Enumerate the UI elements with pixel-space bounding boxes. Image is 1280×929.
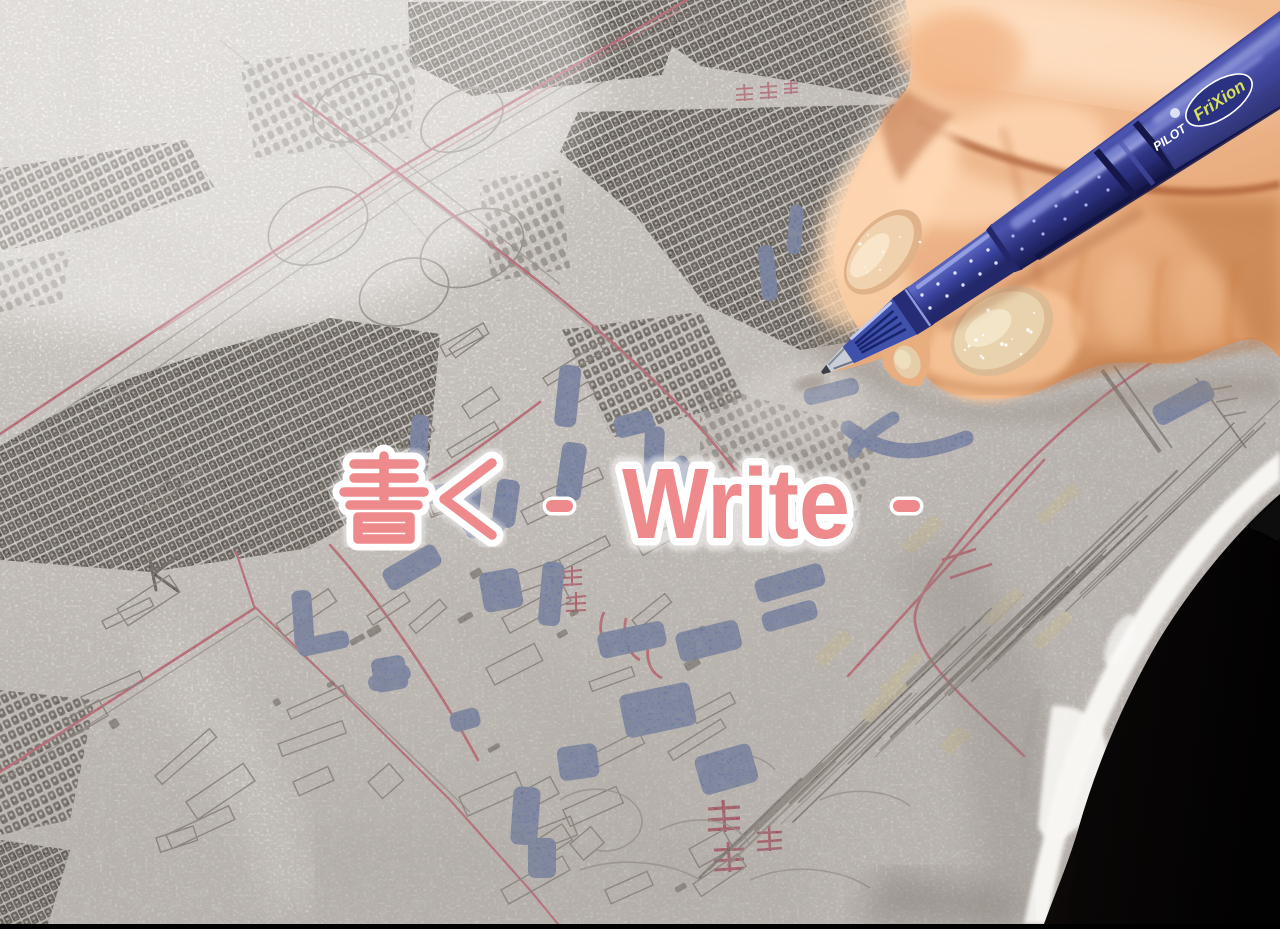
svg-text:Write: Write bbox=[622, 448, 850, 560]
